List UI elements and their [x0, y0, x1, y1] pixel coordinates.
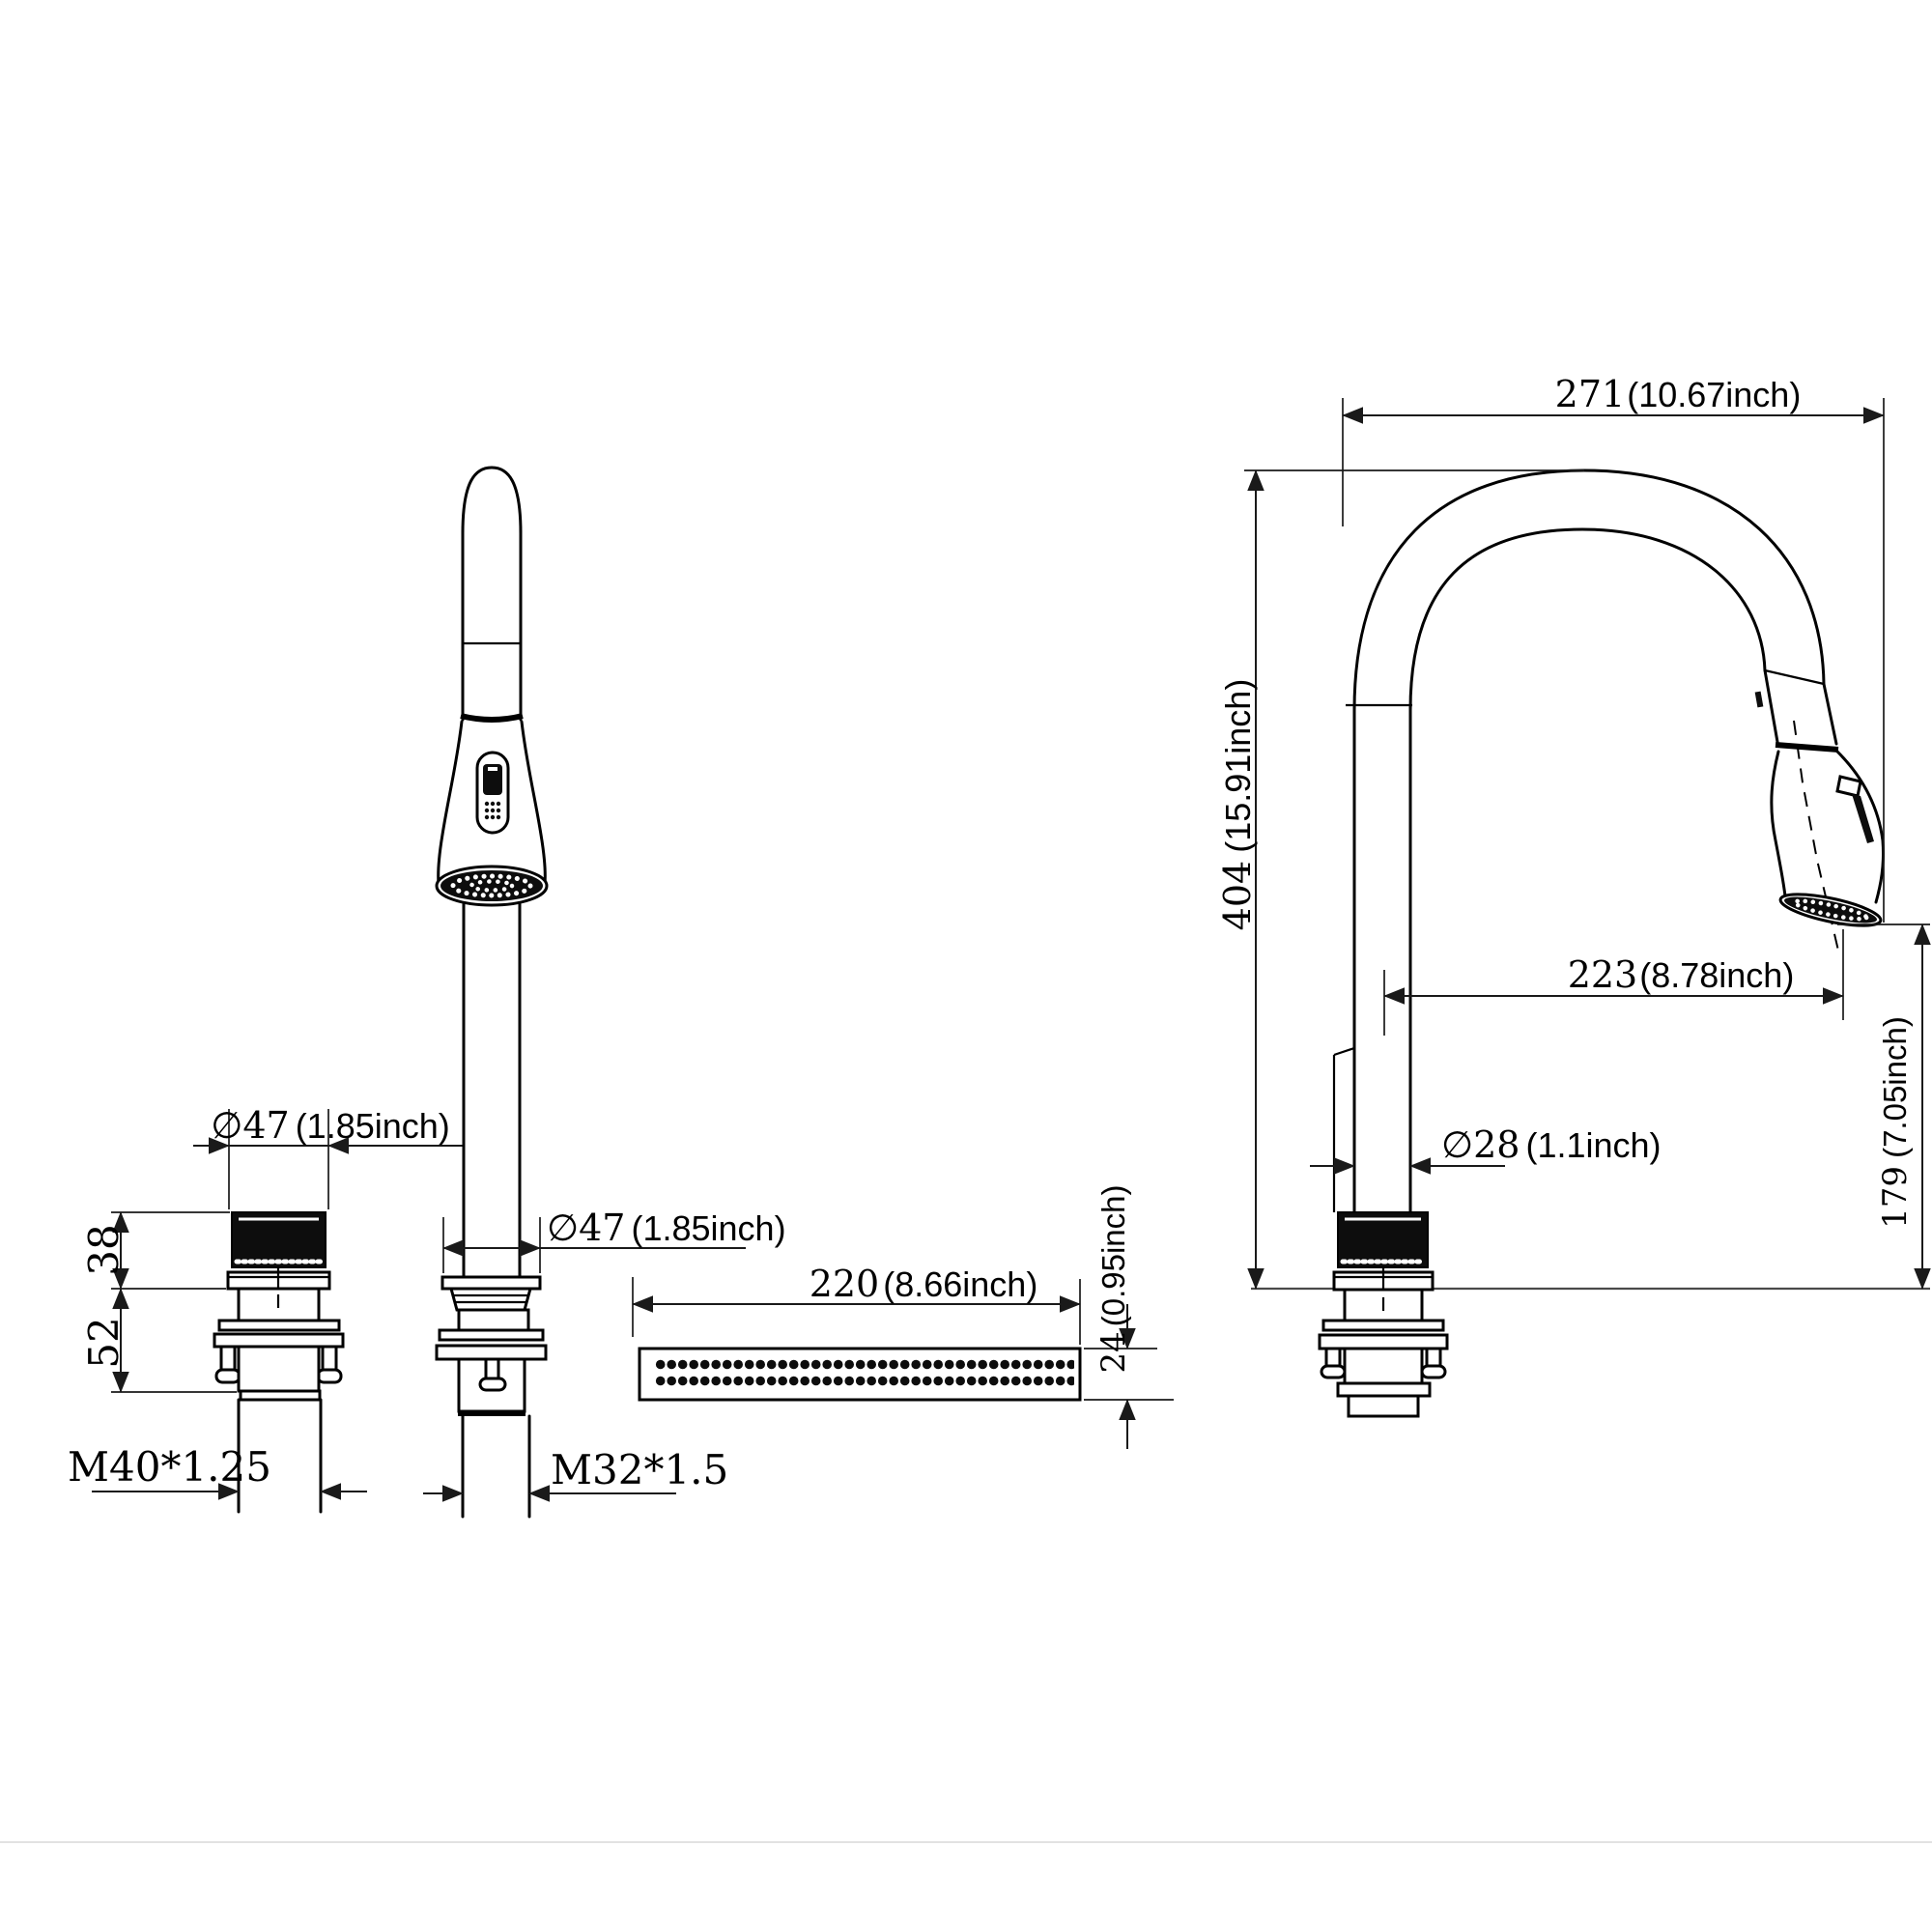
dim-front-thread: M32*1.5: [423, 1446, 728, 1493]
spray-bar-length-label: 220(8.66inch): [810, 1263, 1038, 1305]
flange-disc: [440, 1330, 543, 1340]
spray-face: [437, 867, 547, 905]
knurled-cap: [1338, 1212, 1428, 1267]
spray-pattern-dots: [485, 802, 500, 819]
head-lever: [1837, 777, 1861, 796]
dim-left-cap-height: 38: [80, 1212, 230, 1289]
mounting-pin: [221, 1347, 235, 1372]
dim-tube-diameter: ∅28(1.1inch): [1310, 1123, 1662, 1166]
dim-overall-width: 271(10.67inch): [1343, 373, 1884, 923]
overall-height-label: 404(15.91inch): [1216, 679, 1259, 931]
front-view-figure: [437, 468, 547, 1517]
spray-bar-figure: [639, 1349, 1080, 1400]
spout-top: [463, 468, 521, 533]
ribbed-collar: [451, 1289, 530, 1310]
spray-bar-nozzles: [655, 1356, 1074, 1389]
base-flange: [442, 1277, 540, 1289]
flange-disc: [219, 1321, 339, 1330]
tube-diameter-label: ∅28(1.1inch): [1441, 1123, 1662, 1166]
dim-spout-reach: 223(8.78inch): [1384, 929, 1843, 1036]
side-view-figure: [1251, 470, 1930, 1416]
flange-disc: [214, 1334, 343, 1347]
cap-height-label: 38: [80, 1224, 128, 1275]
thread-spec-label: M32*1.5: [551, 1446, 728, 1493]
spray-head: [439, 722, 462, 884]
mounting-pin: [323, 1347, 336, 1372]
head-button: [1755, 692, 1764, 708]
gooseneck-spout: [1354, 470, 1824, 710]
spout-clearance-label: 179(7.05inch): [1876, 1016, 1915, 1229]
thread-spec-label: M40*1.25: [68, 1443, 271, 1491]
dim-spout-clearance: 179(7.05inch): [1837, 924, 1930, 1289]
spray-head: [1755, 670, 1884, 951]
spray-bar-height-label: 24(0.95inch): [1094, 1184, 1133, 1373]
spray-face: [1778, 888, 1884, 932]
dim-spray-bar-length: 220(8.66inch): [633, 1263, 1080, 1345]
base-diameter-label: ∅47(1.85inch): [547, 1207, 786, 1249]
technical-drawing-canvas: ∅47(1.85inch) 38 52 M40*1.25: [0, 0, 1932, 1932]
cap-diameter-label: ∅47(1.85inch): [211, 1104, 450, 1147]
flange-disc: [1320, 1335, 1447, 1349]
dim-spray-bar-height: 24(0.95inch): [1084, 1184, 1174, 1449]
knurled-cap: [232, 1212, 326, 1267]
flange-disc: [437, 1346, 546, 1359]
dim-front-base-diameter: ∅47(1.85inch): [443, 1207, 786, 1273]
faucet-dimension-drawing: ∅47(1.85inch) 38 52 M40*1.25: [0, 0, 1932, 1932]
body-height-label: 52: [80, 1317, 128, 1368]
flange-disc: [1323, 1321, 1443, 1330]
dim-overall-height: 404(15.91inch): [1216, 470, 1584, 1289]
dim-left-cap-diameter: ∅47(1.85inch): [193, 1104, 464, 1209]
spout-reach-label: 223(8.78inch): [1568, 953, 1795, 996]
overall-width-label: 271(10.67inch): [1555, 373, 1802, 415]
